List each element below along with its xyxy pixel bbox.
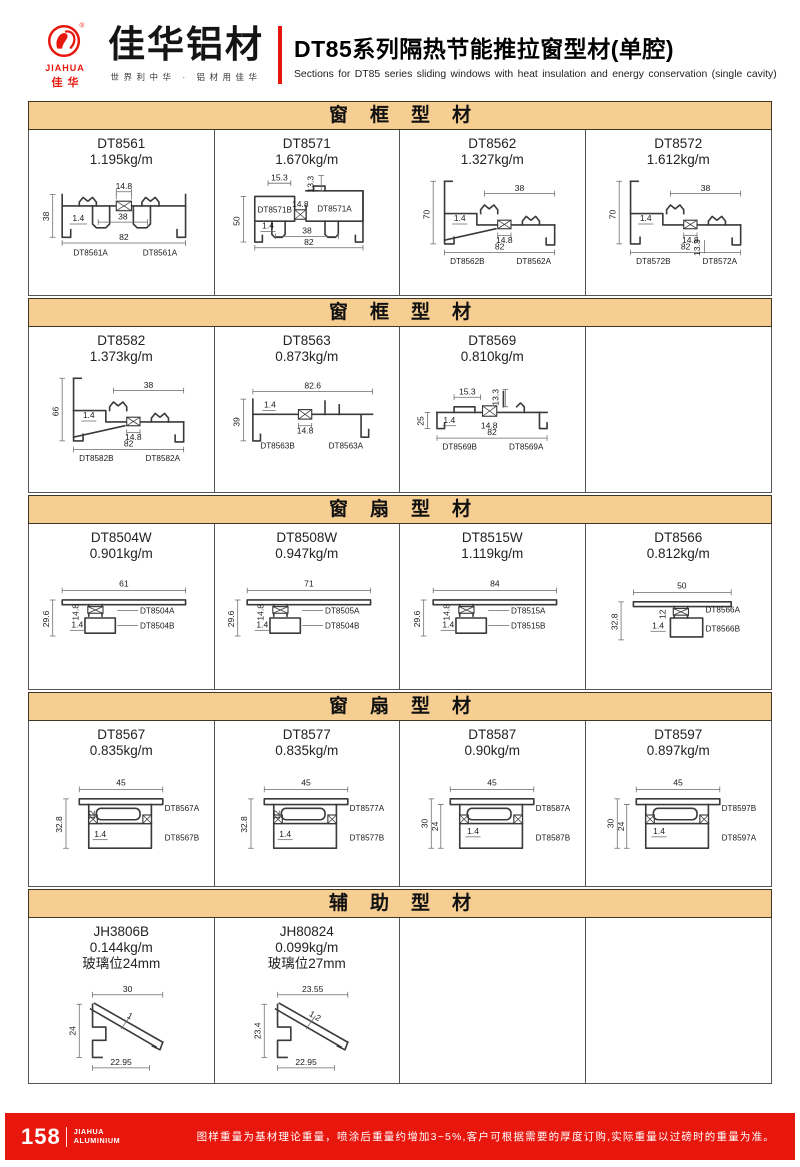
profile-weight: 0.144kg/m xyxy=(29,940,214,956)
profile-drawing: 45DT8567ADT8567B32.8121.4 xyxy=(31,759,212,871)
dim-label: 39 xyxy=(232,417,242,427)
part-label: DT8563A xyxy=(329,442,364,451)
part-label: DT8504A xyxy=(140,606,175,615)
dim-label: 82 xyxy=(681,242,691,252)
dim-label: 24 xyxy=(67,1026,77,1036)
profile-drawing: 45DT8587ADT8587B30241.4 xyxy=(402,759,583,871)
section-title: 窗扇型材 xyxy=(28,692,772,721)
dim-label: 1.4 xyxy=(279,829,291,839)
profile-drawing: 7129.614.81.4DT8505ADT8504B xyxy=(216,562,397,674)
profile-weight: 0.810kg/m xyxy=(400,349,585,365)
dim-label: 1.4 xyxy=(264,400,276,410)
profile-cell: DT85621.327kg/m38701.414.882DT8562BDT856… xyxy=(400,130,586,295)
dim-label: 13.3 xyxy=(306,176,316,193)
dim-label: 50 xyxy=(232,216,242,226)
dim-label: 13.3 xyxy=(490,389,500,406)
profile-drawing: 38701.414.882DT8572BDT8572A13.3 xyxy=(588,168,769,280)
profile-code: DT8572 xyxy=(586,136,772,152)
profile-code: DT8571 xyxy=(215,136,400,152)
profile-cell: DT85821.373kg/m38661.414.882DT8582BDT858… xyxy=(29,327,215,492)
profile-weight: 0.947kg/m xyxy=(215,546,400,562)
profile-cell: DT85770.835kg/m45DT8577ADT8577B32.8121.4 xyxy=(215,721,401,886)
dim-label: 45 xyxy=(487,778,497,788)
section-grid: JH3806B0.144kg/m玻璃位24mm3024122.95JH80824… xyxy=(28,918,772,1084)
profile-weight: 1.612kg/m xyxy=(586,152,772,168)
section-title: 窗框型材 xyxy=(28,101,772,130)
profile-drawing: 15.313.3251.414.882DT8569BDT8569A xyxy=(402,365,583,477)
profile-cell: DT85630.873kg/m82.61.43914.8DT8563BDT856… xyxy=(215,327,401,492)
dim-label: 14.8 xyxy=(441,604,451,621)
dim-label: 66 xyxy=(50,407,60,417)
dim-label: 24 xyxy=(430,821,440,831)
page-footer: 158 JIAHUA ALUMINIUM 图样重量为基材理论重量，喷涂后重量约增… xyxy=(5,1113,795,1160)
part-label: DT8505A xyxy=(325,606,360,615)
jiahua-logo-icon: ® xyxy=(44,20,86,62)
dim-label: 14.8 xyxy=(292,199,309,209)
profile-cell: JH3806B0.144kg/m玻璃位24mm3024122.95 xyxy=(29,918,215,1083)
dim-label: 15.3 xyxy=(459,386,476,396)
dim-label: 1 xyxy=(125,1010,134,1021)
profile-cell: DT85670.835kg/m45DT8567ADT8567B32.8121.4 xyxy=(29,721,215,886)
page-title: DT85系列隔热节能推拉窗型材(单腔) xyxy=(294,30,774,64)
glass-position-note: 玻璃位24mm xyxy=(29,956,214,972)
dim-label: 32.8 xyxy=(239,816,249,833)
title-block: DT85系列隔热节能推拉窗型材(单腔) Sections for DT85 se… xyxy=(294,30,774,80)
catalog-content: 窗框型材DT85611.195kg/m14.8381.43882DT8561AD… xyxy=(28,101,772,1084)
part-label: DT8587A xyxy=(535,804,570,813)
dim-label: 1.4 xyxy=(454,213,466,223)
part-label: DT8572B xyxy=(636,257,671,266)
empty-cell xyxy=(400,918,586,1083)
section-title: 辅助型材 xyxy=(28,889,772,918)
profile-cell: DT8508W0.947kg/m7129.614.81.4DT8505ADT85… xyxy=(215,524,401,689)
footer-brand-line2: ALUMINIUM xyxy=(74,1137,121,1146)
part-label: DT8561A xyxy=(73,248,108,257)
footer-note: 图样重量为基材理论重量，喷涂后重量约增加3~5%,客户可根据需要的厚度订购,实际… xyxy=(197,1129,779,1144)
profile-weight: 0.835kg/m xyxy=(29,743,214,759)
profile-weight: 1.195kg/m xyxy=(29,152,214,168)
profile-weight: 0.901kg/m xyxy=(29,546,214,562)
dim-label: 82 xyxy=(304,237,314,247)
profile-code: DT8563 xyxy=(215,333,400,349)
dim-label: 1.4 xyxy=(257,619,269,629)
profile-cell: DT85711.670kg/m15.313.314.8501.43882DT85… xyxy=(215,130,401,295)
profile-drawing: 6129.614.81.4DT8504ADT8504B xyxy=(31,562,212,674)
dim-label: 70 xyxy=(607,210,617,220)
profile-drawing: 3024122.95 xyxy=(31,972,212,1083)
part-label: DT8515A xyxy=(511,606,546,615)
dim-label: 82 xyxy=(495,242,505,252)
dim-label: 32.8 xyxy=(609,613,619,630)
part-label: DT8571B xyxy=(258,206,293,215)
profile-drawing: 38701.414.882DT8562BDT8562A xyxy=(402,168,583,280)
profile-weight: 1.670kg/m xyxy=(215,152,400,168)
dim-label: 1.4 xyxy=(83,410,95,420)
profile-code: DT8567 xyxy=(29,727,214,743)
dim-label: 22.95 xyxy=(110,1057,132,1067)
profile-code: DT8569 xyxy=(400,333,585,349)
dim-label: 24 xyxy=(616,821,626,831)
dim-label: 82 xyxy=(487,427,497,437)
part-label: DT8504B xyxy=(325,621,360,630)
profile-weight: 1.373kg/m xyxy=(29,349,214,365)
part-label: DT8504B xyxy=(140,621,175,630)
dim-label: 45 xyxy=(116,778,126,788)
profile-cell: DT8515W1.119kg/m8429.614.81.4DT8515ADT85… xyxy=(400,524,586,689)
part-label: DT8597B xyxy=(721,804,756,813)
profile-weight: 0.90kg/m xyxy=(400,743,585,759)
footer-brand: JIAHUA ALUMINIUM xyxy=(74,1128,121,1145)
brand-tagline: 世界利中华 · 铝材用佳华 xyxy=(108,71,264,83)
dim-label: 29.6 xyxy=(226,610,236,627)
dim-label: 30 xyxy=(419,819,429,829)
profile-code: DT8566 xyxy=(586,530,772,546)
glass-position-note: 玻璃位27mm xyxy=(215,956,400,972)
footer-divider xyxy=(66,1127,67,1147)
profile-drawing: 45DT8577ADT8577B32.8121.4 xyxy=(216,759,397,871)
dim-label: 38 xyxy=(701,183,711,193)
profile-code: DT8597 xyxy=(586,727,772,743)
profile-drawing: 82.61.43914.8DT8563BDT8563A xyxy=(216,365,397,477)
profile-cell: DT85611.195kg/m14.8381.43882DT8561ADT856… xyxy=(29,130,215,295)
profile-cell: JH808240.099kg/m玻璃位27mm23.5523.41.222.95 xyxy=(215,918,401,1083)
logo-text-cn: 佳华 xyxy=(47,74,84,90)
dim-label: 61 xyxy=(119,579,129,589)
dim-label: 23.4 xyxy=(253,1022,263,1039)
part-label: DT8515B xyxy=(511,621,546,630)
part-label: DT8587B xyxy=(535,834,570,843)
profile-drawing: 45DT8597BDT8597A30241.4 xyxy=(588,759,769,871)
profile-weight: 0.897kg/m xyxy=(586,743,772,759)
dim-label: 13.3 xyxy=(692,239,702,256)
dim-label: 1.4 xyxy=(652,620,664,630)
section-title: 窗扇型材 xyxy=(28,495,772,524)
profile-weight: 1.119kg/m xyxy=(400,546,585,562)
dim-label: 14.8 xyxy=(70,604,80,621)
part-label: DT8561A xyxy=(142,248,177,257)
profile-drawing: 15.313.314.8501.43882DT8571BDT8571A xyxy=(216,168,397,280)
part-label: DT8572A xyxy=(702,257,737,266)
dim-label: 12 xyxy=(86,810,96,820)
dim-label: 1.4 xyxy=(442,619,454,629)
profile-code: DT8587 xyxy=(400,727,585,743)
profile-code: DT8508W xyxy=(215,530,400,546)
part-label: DT8577A xyxy=(350,804,385,813)
part-label: DT8582A xyxy=(145,454,180,463)
dim-label: 45 xyxy=(673,778,683,788)
dim-label: 38 xyxy=(41,211,51,221)
dim-label: 32.8 xyxy=(54,816,64,833)
part-label: DT8597A xyxy=(721,834,756,843)
dim-label: 50 xyxy=(677,581,687,591)
dim-label: 1.4 xyxy=(640,213,652,223)
dim-label: 12 xyxy=(657,609,667,619)
profile-code: JH3806B xyxy=(29,924,214,940)
part-label: DT8566A xyxy=(705,605,740,614)
dim-label: 71 xyxy=(304,579,314,589)
dim-label: 1.4 xyxy=(443,415,455,425)
profile-cell: DT85690.810kg/m15.313.3251.414.882DT8569… xyxy=(400,327,586,492)
part-label: DT8563B xyxy=(261,442,296,451)
brand-block: 佳华铝材 世界利中华 · 铝材用佳华 xyxy=(108,26,264,83)
profile-weight: 0.099kg/m xyxy=(215,940,400,956)
dim-label: 30 xyxy=(123,984,133,994)
page-subtitle: Sections for DT85 series sliding windows… xyxy=(294,69,774,80)
dim-label: 14.8 xyxy=(115,181,132,191)
profile-cell: DT85970.897kg/m45DT8597BDT8597A30241.4 xyxy=(586,721,772,886)
dim-label: 38 xyxy=(302,225,312,235)
section-title: 窗框型材 xyxy=(28,298,772,327)
profile-weight: 0.873kg/m xyxy=(215,349,400,365)
dim-label: 1.4 xyxy=(653,826,665,836)
profile-drawing: 38661.414.882DT8582BDT8582A xyxy=(31,365,212,477)
part-label: DT8582B xyxy=(79,454,114,463)
dim-label: 1.4 xyxy=(467,826,479,836)
part-label: DT8566B xyxy=(705,624,740,633)
profile-code: JH80824 xyxy=(215,924,400,940)
profile-weight: 1.327kg/m xyxy=(400,152,585,168)
profile-weight: 0.812kg/m xyxy=(586,546,772,562)
profile-cell: DT8504W0.901kg/m6129.614.81.4DT8504ADT85… xyxy=(29,524,215,689)
part-label: DT8569A xyxy=(509,442,544,451)
profile-drawing: 5032.8121.4DT8566ADT8566B xyxy=(588,562,769,674)
dim-label: 45 xyxy=(302,778,312,788)
page-header: ® JIAHUA 佳华 佳华铝材 世界利中华 · 铝材用佳华 DT85系列隔热节… xyxy=(0,0,800,99)
section-grid: DT85611.195kg/m14.8381.43882DT8561ADT856… xyxy=(28,130,772,296)
dim-label: 25 xyxy=(415,416,425,426)
dim-label: 82.6 xyxy=(305,381,322,391)
dim-label: 84 xyxy=(490,579,500,589)
section-grid: DT85670.835kg/m45DT8567ADT8567B32.8121.4… xyxy=(28,721,772,887)
part-label: DT8577B xyxy=(350,834,385,843)
registered-mark-icon: ® xyxy=(79,21,84,29)
dim-label: 1.4 xyxy=(72,213,84,223)
dim-label: 22.95 xyxy=(296,1057,318,1067)
dim-label: 38 xyxy=(144,380,154,390)
part-label: DT8567B xyxy=(164,834,199,843)
dim-label: 30 xyxy=(605,819,615,829)
empty-cell xyxy=(586,327,772,492)
dim-label: 38 xyxy=(515,183,525,193)
part-label: DT8569B xyxy=(442,442,477,451)
profile-drawing: 23.5523.41.222.95 xyxy=(216,972,397,1083)
part-label: DT8571A xyxy=(318,205,353,214)
red-divider xyxy=(278,26,282,84)
profile-code: DT8561 xyxy=(29,136,214,152)
profile-weight: 0.835kg/m xyxy=(215,743,400,759)
dim-label: 15.3 xyxy=(271,172,288,182)
profile-code: DT8515W xyxy=(400,530,585,546)
profile-drawing: 14.8381.43882DT8561ADT8561A xyxy=(31,168,212,280)
dim-label: 1.4 xyxy=(71,619,83,629)
profile-code: DT8562 xyxy=(400,136,585,152)
dim-label: 12 xyxy=(272,810,282,820)
profile-code: DT8582 xyxy=(29,333,214,349)
profile-cell: DT85660.812kg/m5032.8121.4DT8566ADT8566B xyxy=(586,524,772,689)
part-label: DT8562A xyxy=(516,257,551,266)
part-label: DT8567A xyxy=(164,804,199,813)
dim-label: 1.4 xyxy=(262,221,274,231)
profile-cell: DT85721.612kg/m38701.414.882DT8572BDT857… xyxy=(586,130,772,295)
dim-label: 14.8 xyxy=(256,604,266,621)
dim-label: 70 xyxy=(421,210,431,220)
part-label: DT8562B xyxy=(450,257,485,266)
dim-label: 29.6 xyxy=(412,610,422,627)
profile-drawing: 8429.614.81.4DT8515ADT8515B xyxy=(402,562,583,674)
dim-label: 38 xyxy=(118,211,128,221)
profile-code: DT8577 xyxy=(215,727,400,743)
dim-label: 82 xyxy=(124,439,134,449)
section-grid: DT8504W0.901kg/m6129.614.81.4DT8504ADT85… xyxy=(28,524,772,690)
profile-code: DT8504W xyxy=(29,530,214,546)
page-number: 158 xyxy=(21,1124,61,1150)
dim-label: 1.4 xyxy=(94,829,106,839)
empty-cell xyxy=(586,918,772,1083)
dim-label: 29.6 xyxy=(41,610,51,627)
dim-label: 82 xyxy=(119,232,129,242)
dim-label: 23.55 xyxy=(302,984,324,994)
dim-label: 14.8 xyxy=(297,425,314,435)
jiahua-logo: ® JIAHUA 佳华 xyxy=(26,20,104,90)
section-grid: DT85821.373kg/m38661.414.882DT8582BDT858… xyxy=(28,327,772,493)
logo-text-en: JIAHUA xyxy=(45,63,85,73)
brand-name: 佳华铝材 xyxy=(108,26,264,65)
profile-cell: DT85870.90kg/m45DT8587ADT8587B30241.4 xyxy=(400,721,586,886)
